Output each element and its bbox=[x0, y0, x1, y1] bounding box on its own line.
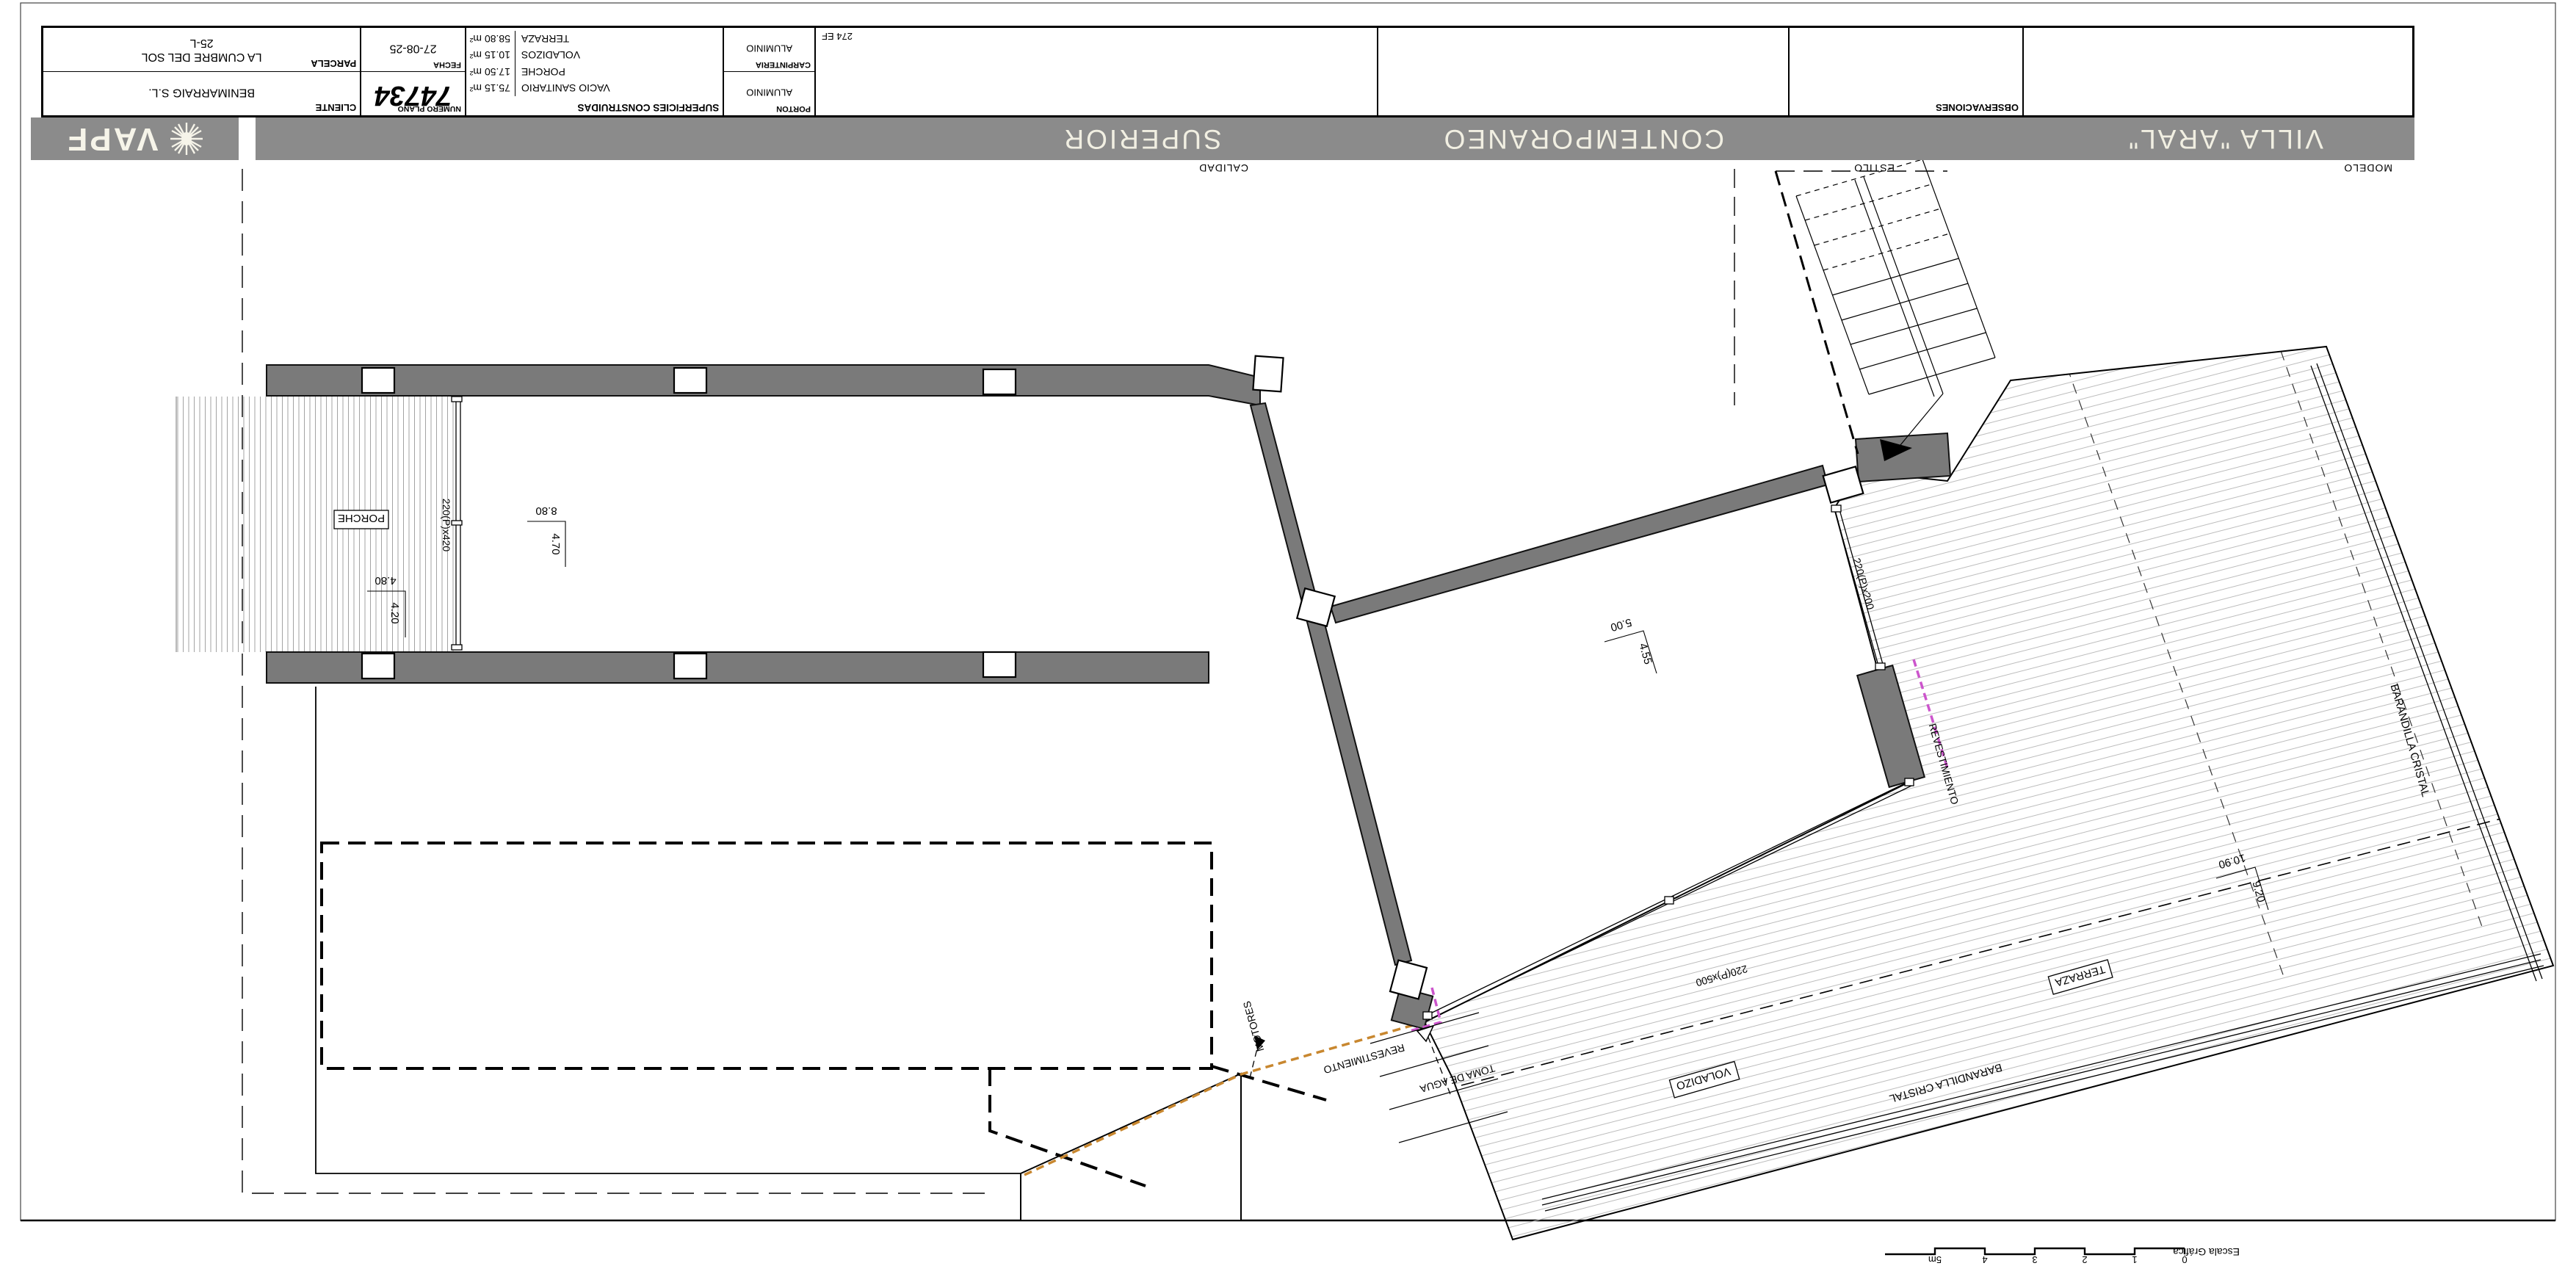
parcela-row: PARCELA LA CUMBRE DEL SOL 25-L bbox=[43, 28, 360, 72]
floor-plan-canvas: PORCHE VOLADIZO TERRAZA BARANDILLA CRIST… bbox=[0, 0, 2576, 1288]
terrace-deck bbox=[1395, 316, 2570, 1263]
cliente-label: CLIENTE bbox=[316, 102, 357, 113]
scale-bar: Escala Gráfica 0 1 2 3 4 5m bbox=[1877, 1237, 2244, 1263]
header-band-bar: VILLA "ARAL" CONTEMPORANEO SUPERIOR bbox=[256, 117, 2414, 160]
dim-salon-h: 4.70 bbox=[549, 533, 562, 554]
carpinteria-label: CARPINTERIA bbox=[756, 60, 811, 69]
title-block-empty-cell bbox=[1378, 28, 1790, 115]
carpinteria-value: ALUMINIO bbox=[724, 43, 814, 54]
stairs-upper bbox=[1734, 159, 1995, 461]
ramp-outline bbox=[1021, 1074, 1241, 1220]
superficie-row: VOLADIZOS 10.15 m² bbox=[466, 47, 723, 63]
calidad-value: SUPERIOR bbox=[1021, 123, 1263, 154]
estilo-label: ESTILO bbox=[1853, 162, 1895, 174]
parcela-value-line2: 25-L bbox=[43, 36, 360, 50]
cliente-row: CLIENTE BENIMARRAIG S.L. bbox=[43, 72, 360, 115]
brand-name: VAPF bbox=[65, 120, 158, 157]
superficie-row: PORCHE 17.50 m² bbox=[466, 64, 723, 80]
fecha-label: FECHA bbox=[433, 60, 461, 69]
porche-label: PORCHE bbox=[338, 512, 385, 524]
lower-floor-outline bbox=[316, 687, 1022, 1173]
carpinteria-row: CARPINTERIA ALUMINIO bbox=[724, 28, 814, 72]
porch-door-label: 220(P)x420 bbox=[441, 499, 452, 552]
title-block: OBSERVACIONES 274 EF PORTON ALUMINIO CAR… bbox=[41, 26, 2414, 117]
superficie-name: VOLADIZOS bbox=[515, 49, 723, 61]
porton-row: PORTON ALUMINIO bbox=[724, 72, 814, 115]
parcela-cliente-cell: CLIENTE BENIMARRAIG S.L. PARCELA LA CUMB… bbox=[43, 28, 361, 115]
parcela-value-line1: LA CUMBRE DEL SOL bbox=[43, 50, 360, 64]
superficie-row: VACIO SANITARIO 75.15 m² bbox=[466, 80, 723, 96]
scale-tick: 0 bbox=[2182, 1254, 2187, 1263]
fecha-value: 27-08-25 bbox=[361, 42, 465, 55]
estilo-value: CONTEMPORANEO bbox=[1445, 123, 1724, 154]
porton-label: PORTON bbox=[776, 104, 811, 113]
title-block-spare-cell bbox=[2024, 28, 2412, 115]
modelo-label: MODELO bbox=[2343, 162, 2392, 174]
numero-plano-row: NUMERO PLANO 74734 bbox=[361, 72, 465, 115]
scale-tick: 2 bbox=[2082, 1254, 2087, 1263]
scale-tick: 3 bbox=[2032, 1254, 2037, 1263]
scale-tick: 4 bbox=[1982, 1254, 1987, 1263]
superficie-name: PORCHE bbox=[515, 66, 723, 78]
dim-room-w: 5.00 bbox=[1609, 615, 1633, 633]
fecha-row: FECHA 27-08-25 bbox=[361, 28, 465, 72]
scale-bar-graphic: 0 1 2 3 4 5m bbox=[1877, 1237, 2244, 1263]
dim-room-h: 4.55 bbox=[1636, 642, 1654, 666]
superficie-area: 75.15 m² bbox=[466, 80, 515, 96]
carpinteria-porton-cell: PORTON ALUMINIO CARPINTERIA ALUMINIO bbox=[724, 28, 816, 115]
cliente-value: BENIMARRAIG S.L. bbox=[43, 86, 360, 99]
superficie-name: VACIO SANITARIO bbox=[515, 82, 723, 94]
porton-value: ALUMINIO bbox=[724, 87, 814, 98]
superficies-cell: SUPERFICIES CONSTRUIDAS VACIO SANITARIO … bbox=[466, 28, 724, 115]
fecha-plano-cell: NUMERO PLANO 74734 FECHA 27-08-25 bbox=[361, 28, 466, 115]
scale-tick: 1 bbox=[2132, 1254, 2137, 1263]
motores-label: MOTORES bbox=[1241, 1000, 1267, 1053]
porch-area bbox=[176, 397, 455, 652]
superficie-name: TERRAZA bbox=[515, 33, 723, 45]
reference-cell: 274 EF bbox=[816, 28, 1378, 115]
numero-plano-value: 74734 bbox=[361, 80, 465, 112]
observaciones-label: OBSERVACIONES bbox=[1936, 102, 2019, 113]
dim-porche-h: 4.20 bbox=[388, 602, 401, 623]
vapf-star-icon bbox=[169, 121, 204, 156]
dim-salon-w: 8.80 bbox=[535, 504, 557, 517]
reference-code: 274 EF bbox=[822, 31, 853, 42]
modelo-value: VILLA "ARAL" bbox=[2108, 123, 2342, 154]
calidad-label: CALIDAD bbox=[1198, 162, 1248, 174]
header-band-labels: MODELO ESTILO CALIDAD bbox=[31, 162, 2414, 175]
superficie-row: TERRAZA 58.80 m² bbox=[466, 31, 723, 47]
dim-porche-w: 4.80 bbox=[375, 574, 396, 587]
superficie-area: 17.50 m² bbox=[466, 64, 515, 80]
scale-tick: 5m bbox=[1928, 1254, 1942, 1263]
header-band: MODELO ESTILO CALIDAD VILLA "ARAL" CONTE… bbox=[31, 117, 2414, 175]
observaciones-cell: OBSERVACIONES bbox=[1790, 28, 2024, 115]
brand-logo: VAPF bbox=[31, 117, 239, 160]
superficie-area: 58.80 m² bbox=[466, 31, 515, 47]
superficies-label: SUPERFICIES CONSTRUIDAS bbox=[578, 102, 720, 113]
superficie-area: 10.15 m² bbox=[466, 47, 515, 63]
